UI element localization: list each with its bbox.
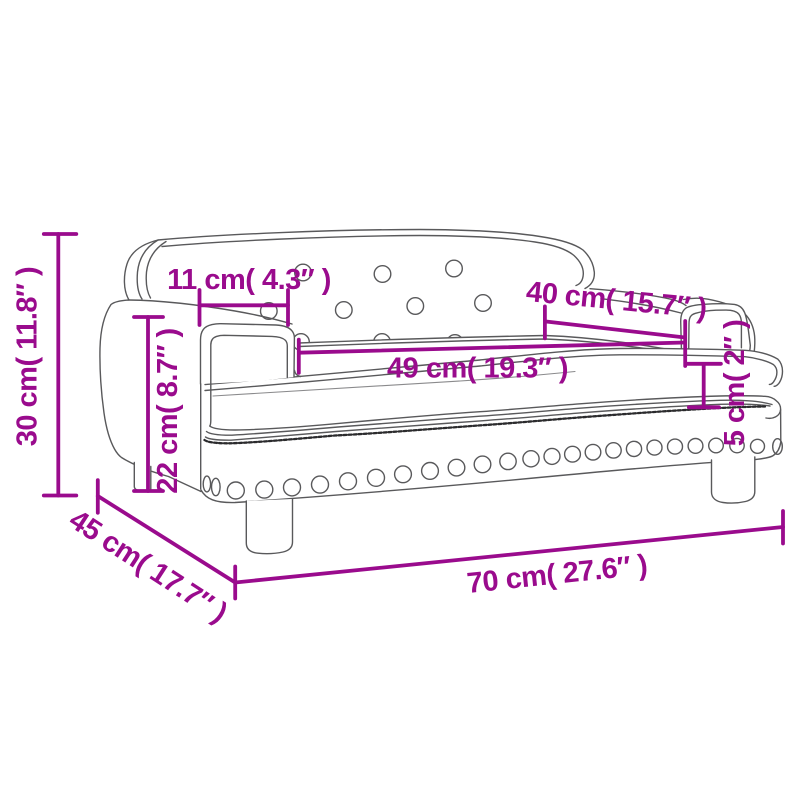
svg-text:11 cm( 4.3″ ): 11 cm( 4.3″ ) (167, 264, 331, 296)
svg-text:5 cm( 2″ ): 5 cm( 2″ ) (719, 320, 751, 447)
svg-text:30 cm( 11.8″ ): 30 cm( 11.8″ ) (11, 267, 43, 446)
svg-text:49 cm( 19.3″ ): 49 cm( 19.3″ ) (387, 353, 568, 385)
svg-text:22 cm( 8.7″ ): 22 cm( 8.7″ ) (152, 328, 184, 493)
